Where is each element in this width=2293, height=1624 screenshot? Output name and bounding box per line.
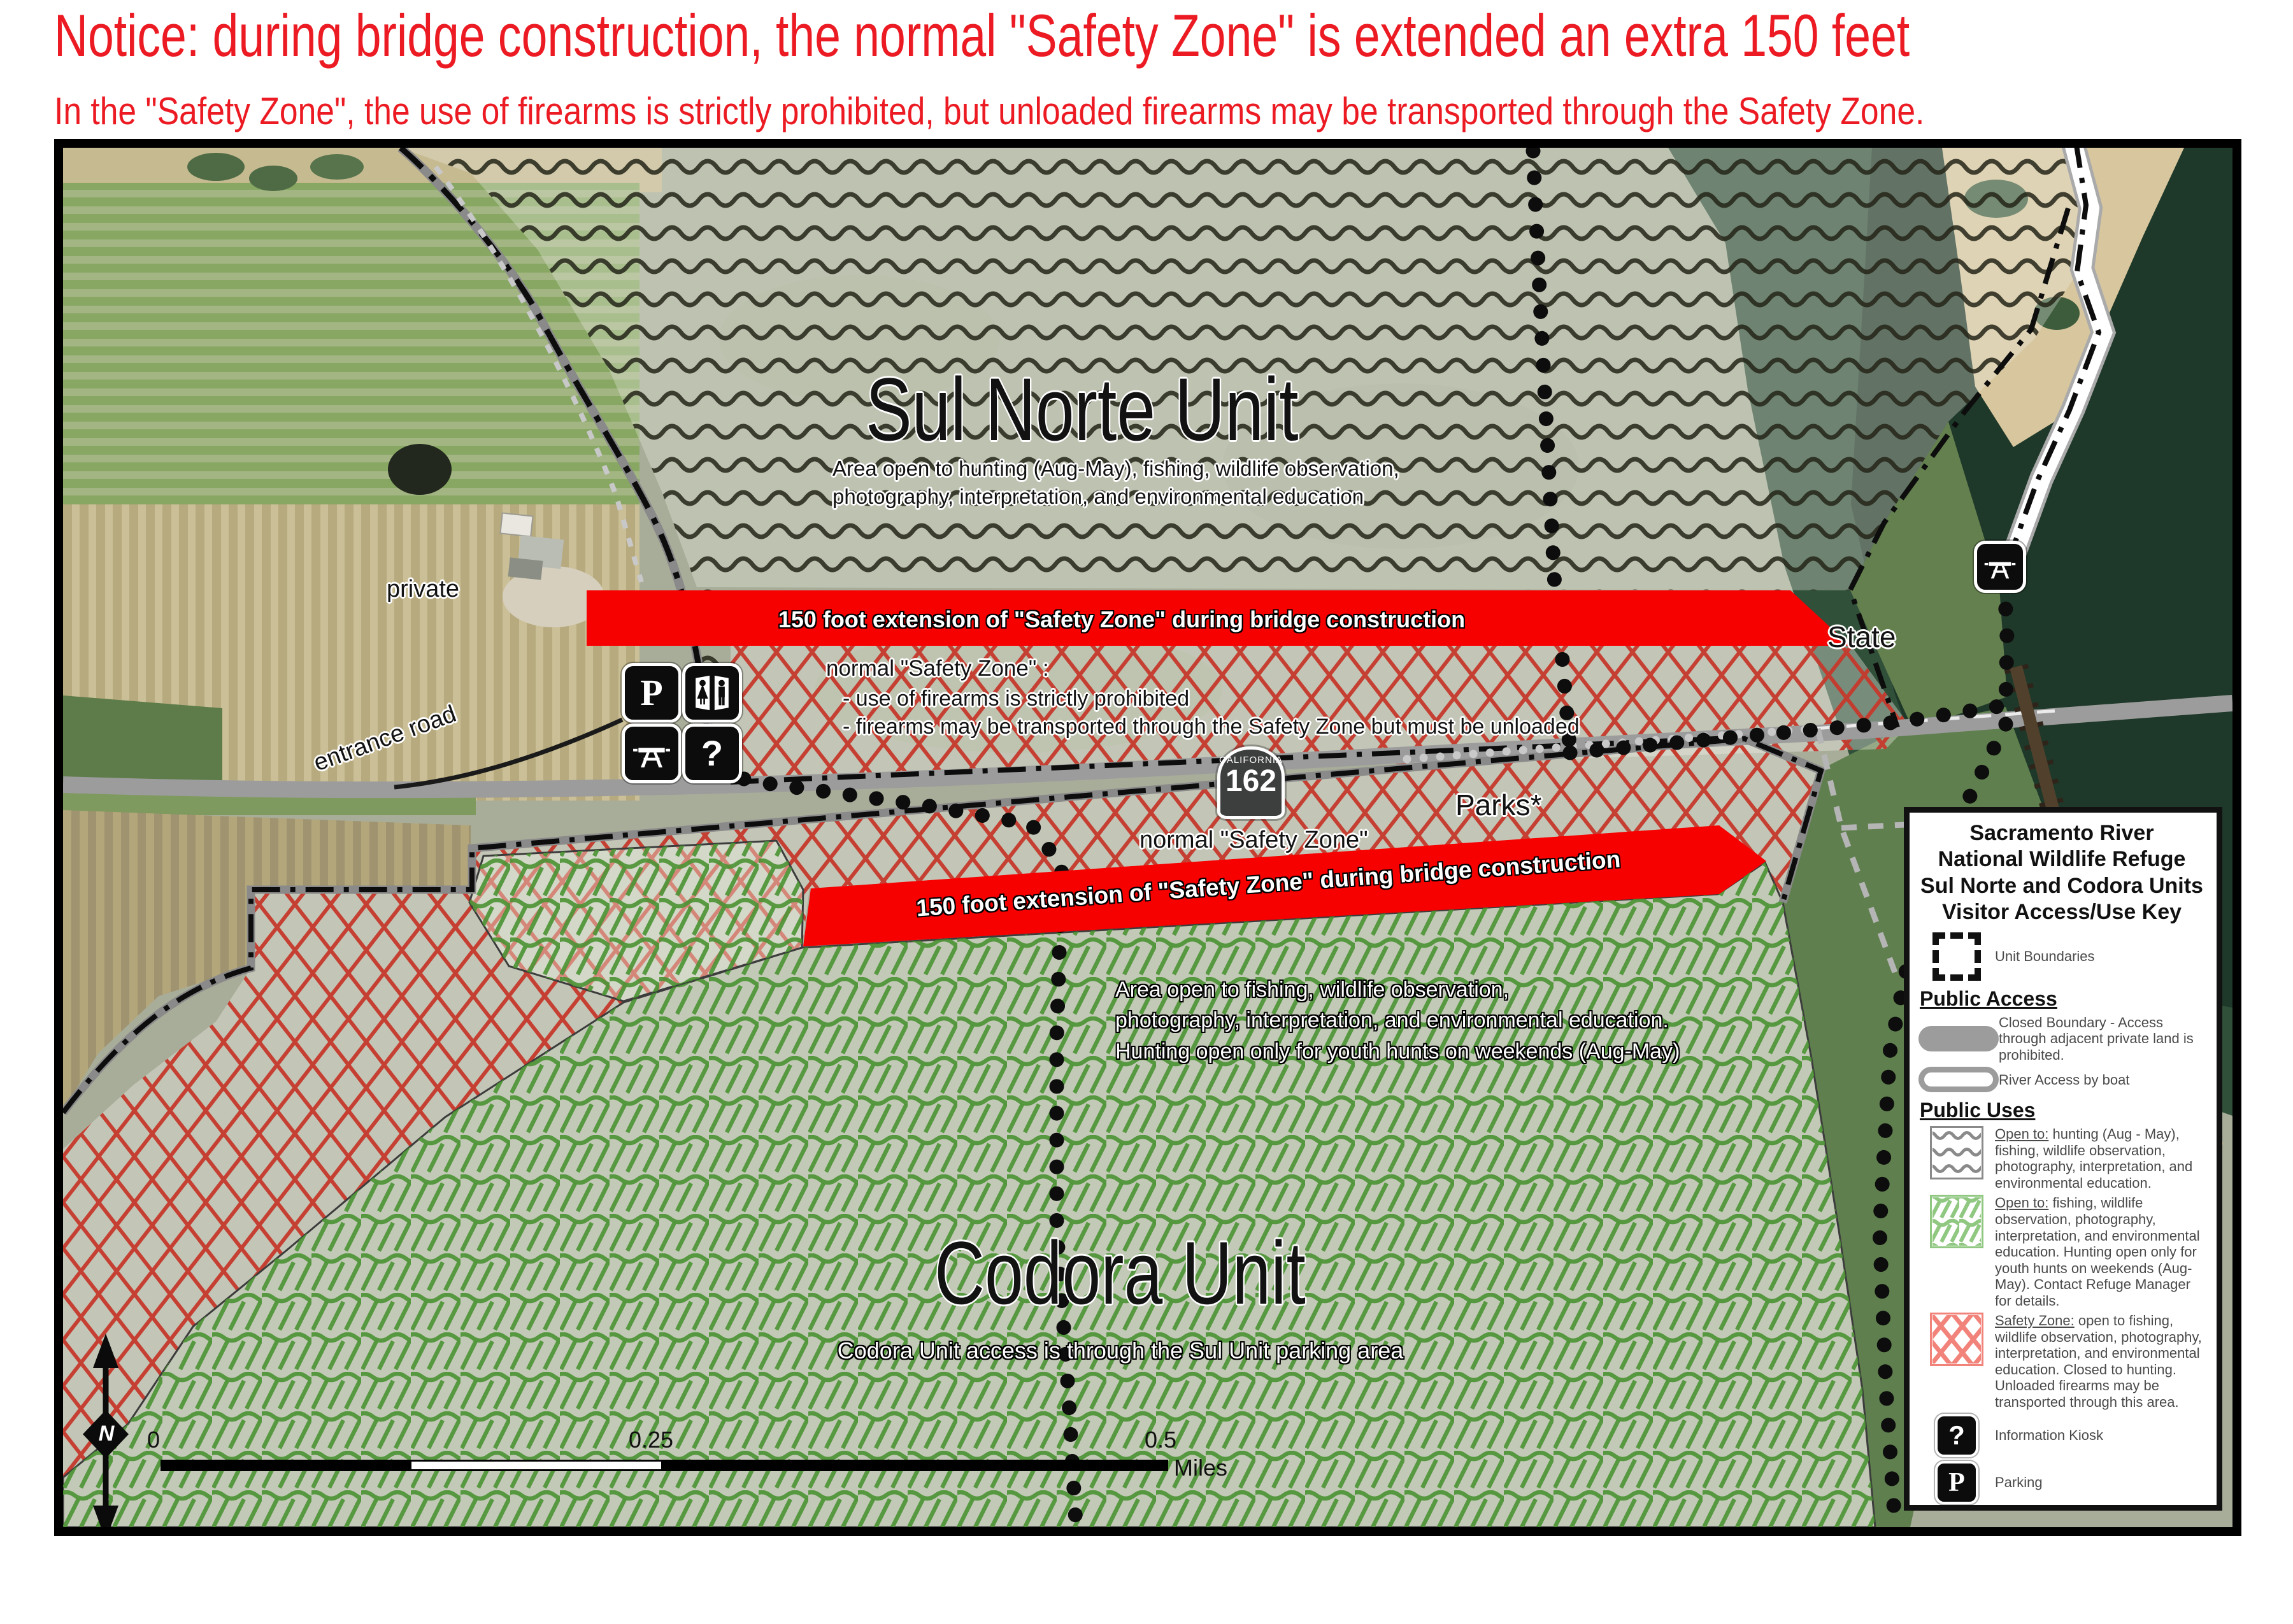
safety-zone-swatch <box>1930 1313 1983 1366</box>
notice-title: Notice: during bridge construction, the … <box>54 1 2293 70</box>
parking-icon: P <box>1935 1461 1978 1504</box>
legend-item-safety-zone: Safety Zone: open to fishing, wildlife o… <box>1918 1313 2205 1410</box>
sul-norte-unit-description: Area open to hunting (Aug-May), fishing,… <box>832 455 1399 510</box>
restroom-glyph <box>692 673 732 713</box>
scale-bar <box>161 1460 1168 1471</box>
picnic-area-icon <box>1935 1508 1978 1511</box>
legend-item-river-access: River Access by boat <box>1918 1067 2205 1092</box>
legend-item-unit-boundaries: Unit Boundaries <box>1918 932 2205 981</box>
legend-public-uses-header: Public Uses <box>1920 1099 2205 1122</box>
normal-safety-zone-label-south: normal "Safety Zone" <box>1139 827 1368 855</box>
state-land-label: State <box>1827 620 1896 654</box>
legend-item-info-kiosk: ? Information Kiosk <box>1918 1414 2205 1457</box>
private-land-label: private <box>387 576 459 604</box>
notice-subtitle: In the "Safety Zone", the use of firearm… <box>54 89 2229 133</box>
river-access-icon <box>1918 1067 1999 1092</box>
scale-half: 0.5 <box>1145 1427 1176 1453</box>
legend-item-picnic: Picnic Area <box>1918 1508 2205 1511</box>
youth-hunt-zone-swatch <box>1930 1195 1983 1248</box>
legend-item-closed-boundary: Closed Boundary - Access through adjacen… <box>1918 1015 2205 1064</box>
picnic-table-glyph <box>1983 550 2017 583</box>
legend: Sacramento River National Wildlife Refug… <box>1904 807 2222 1511</box>
banner-top-label: 150 foot extension of "Safety Zone" duri… <box>587 594 1657 646</box>
restroom-icon <box>682 663 742 723</box>
scale-unit: Miles <box>1174 1455 1227 1481</box>
legend-item-hunting-zone: Open to: hunting (Aug - May), fishing, w… <box>1918 1126 2205 1191</box>
refuge-map: Sul Norte Unit Area open to hunting (Aug… <box>54 139 2241 1536</box>
picnic-table-glyph <box>632 734 671 773</box>
information-kiosk-icon: ? <box>682 723 742 783</box>
highway-162-shield: CALIFORNIA 162 <box>1217 746 1285 819</box>
codora-access-note: Codora Unit access is through the Sul Un… <box>675 1337 1566 1364</box>
normal-safety-zone-rule2: - firearms may be transported through th… <box>843 715 1580 739</box>
closed-boundary-icon <box>1918 1026 1999 1051</box>
picnic-area-icon <box>622 723 682 783</box>
legend-public-access-header: Public Access <box>1920 987 2205 1011</box>
normal-safety-zone-rule1: - use of firearms is strictly prohibited <box>843 687 1189 711</box>
shield-number: 162 <box>1225 766 1276 797</box>
legend-title: Sacramento River National Wildlife Refug… <box>1918 820 2205 926</box>
codora-open-description: Area open to fishing, wildlife observati… <box>1115 974 1680 1067</box>
picnic-area-icon-east <box>1974 541 2026 593</box>
north-arrow-n: N <box>91 1421 122 1446</box>
legend-item-parking: P Parking <box>1918 1461 2205 1504</box>
normal-safety-zone-heading: normal "Safety Zone" : <box>826 656 1049 681</box>
codora-unit-title: Codora Unit <box>770 1222 1471 1324</box>
scale-zero: 0 <box>147 1427 160 1453</box>
legend-item-youth-hunt-zone: Open to: fishing, wildlife observation, … <box>1918 1195 2205 1309</box>
unit-boundary-icon <box>1932 932 1981 981</box>
page: Notice: during bridge construction, the … <box>0 0 2293 1624</box>
information-kiosk-icon: ? <box>1935 1414 1978 1457</box>
scale-quarter: 0.25 <box>629 1427 673 1453</box>
sul-norte-unit-title: Sul Norte Unit <box>789 358 1375 460</box>
parking-icon: P <box>622 663 682 723</box>
parks-label: Parks* <box>1455 788 1541 822</box>
hunting-zone-swatch <box>1930 1126 1983 1179</box>
